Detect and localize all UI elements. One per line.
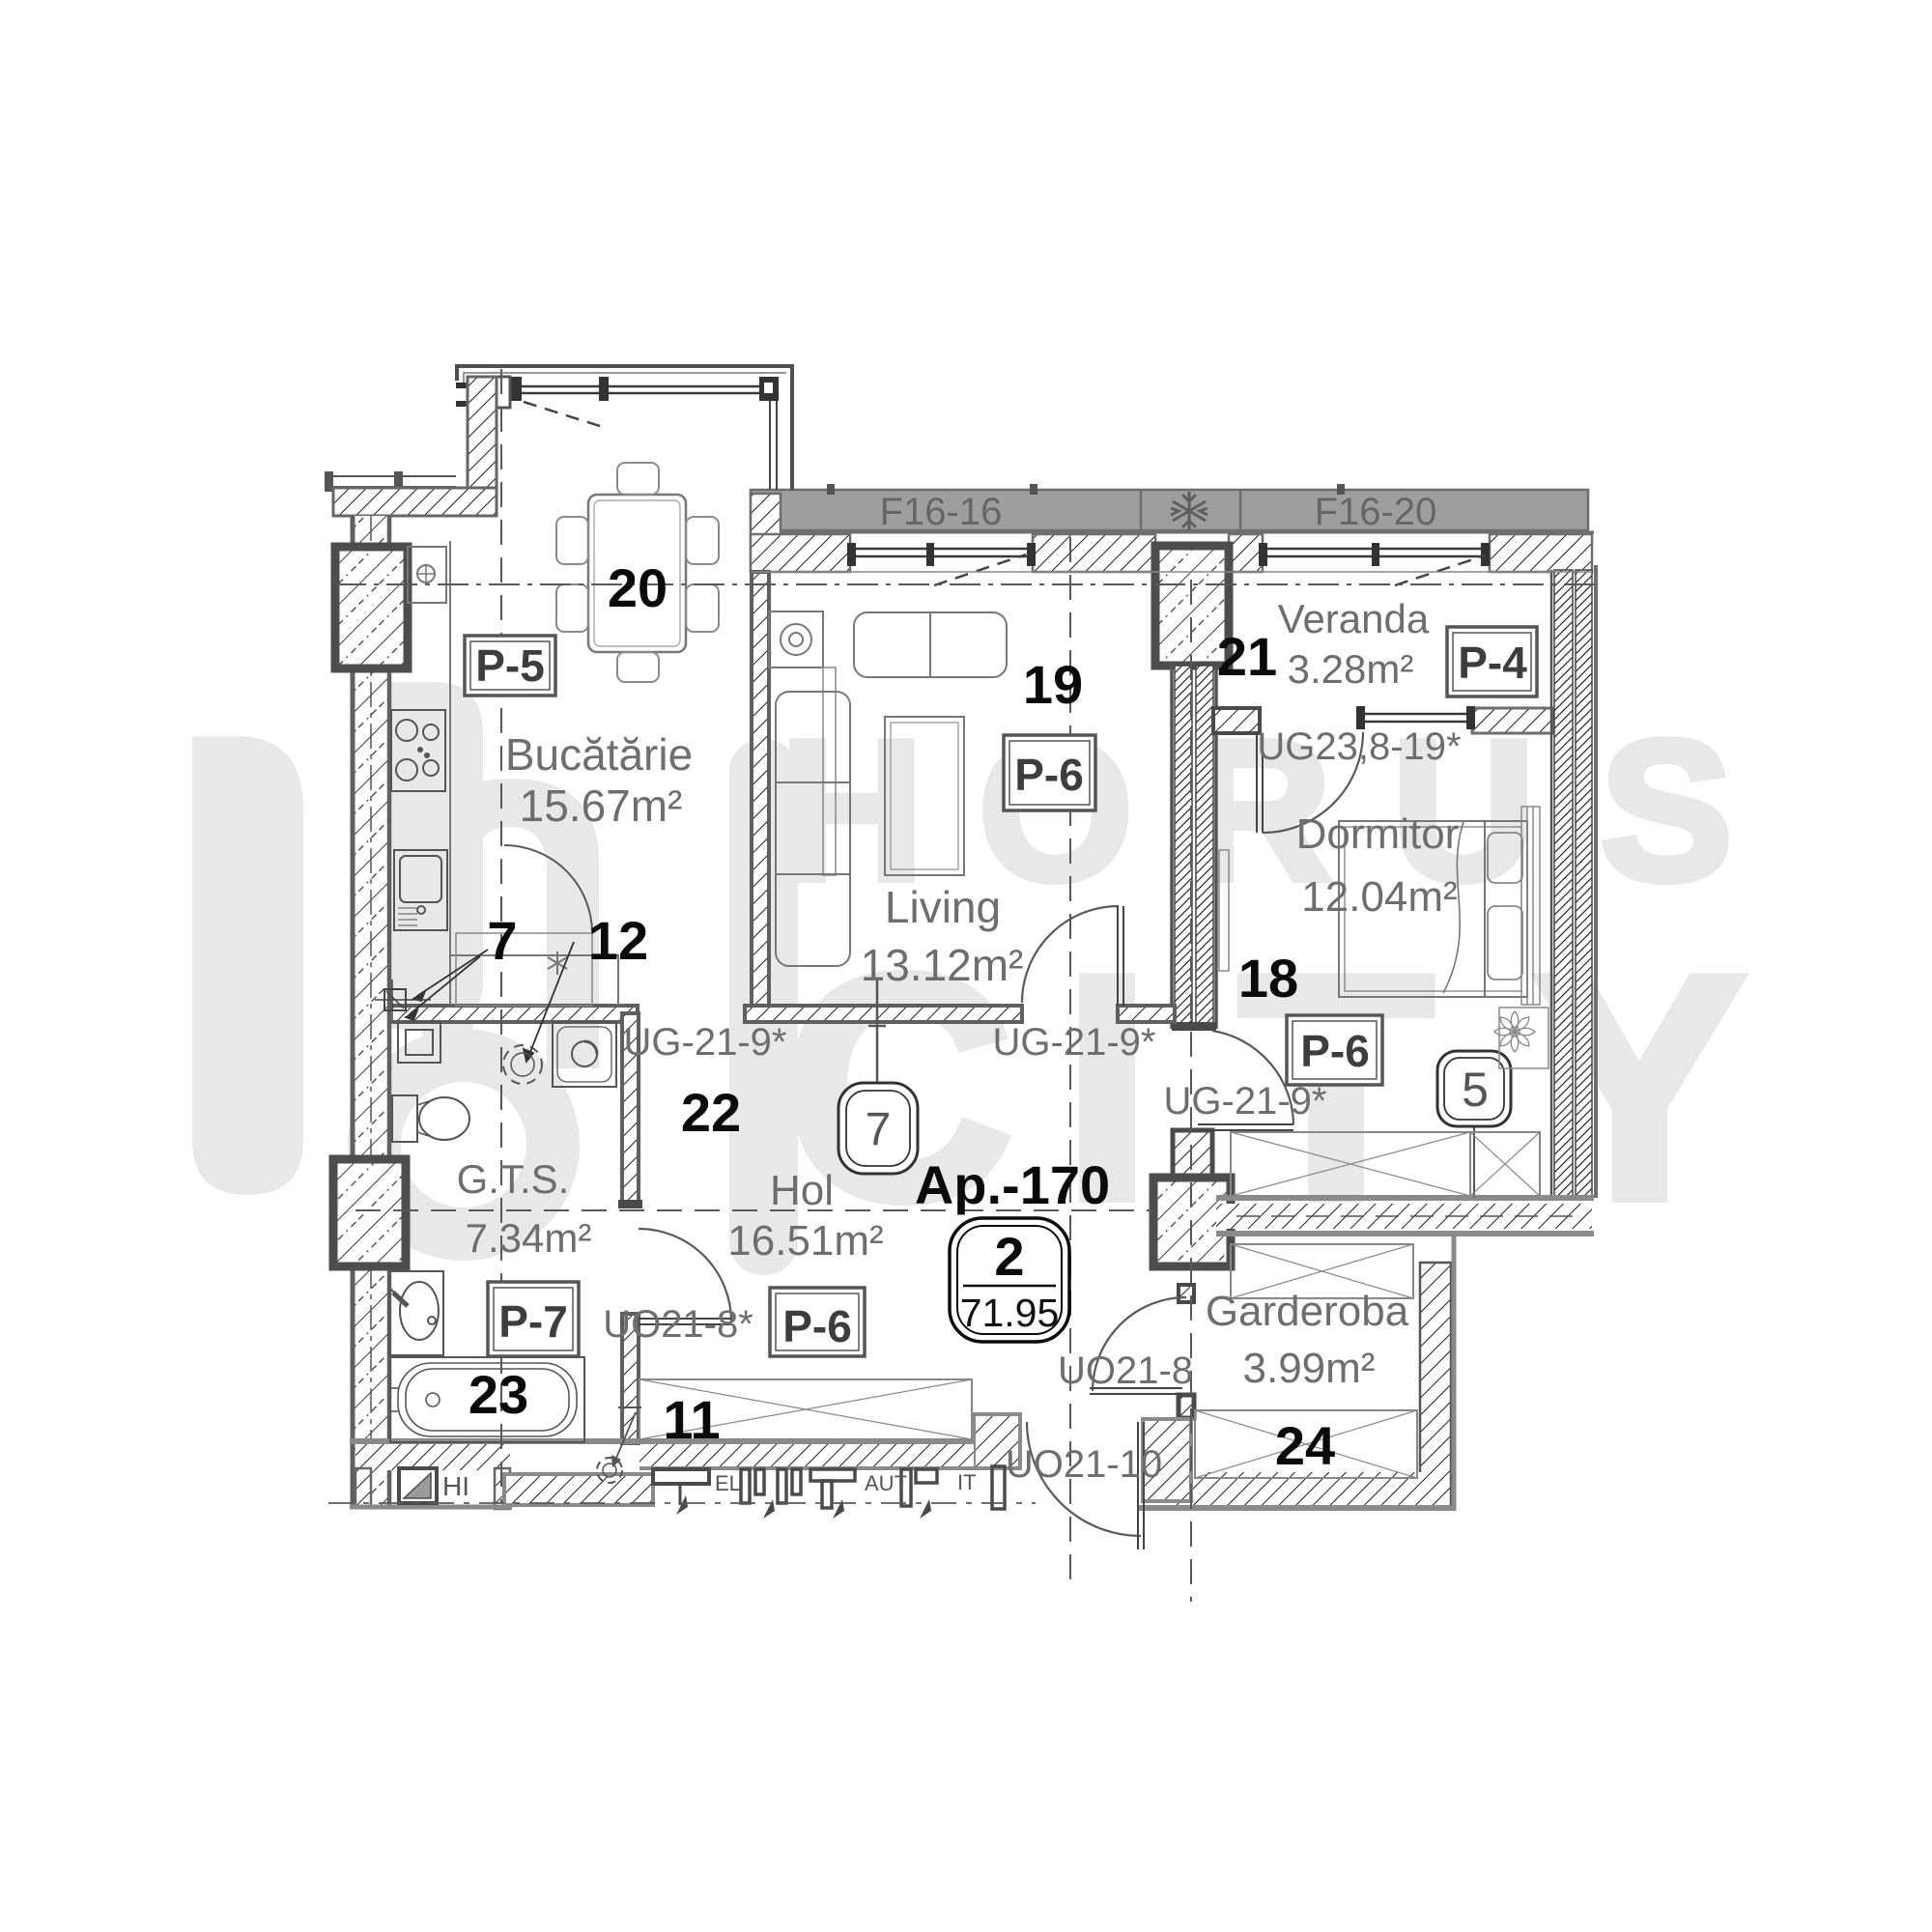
svg-text:23: 23 — [469, 1364, 528, 1425]
svg-text:15.67m²: 15.67m² — [520, 781, 683, 831]
svg-text:3.99m²: 3.99m² — [1243, 1345, 1376, 1392]
svg-text:S: S — [1600, 699, 1732, 922]
svg-text:UG-21-9*: UG-21-9* — [993, 1021, 1156, 1064]
svg-text:22: 22 — [681, 1082, 741, 1143]
svg-text:UO21-8*: UO21-8* — [603, 1303, 753, 1346]
svg-text:7.34m²: 7.34m² — [466, 1215, 592, 1261]
svg-text:HI: HI — [442, 1471, 469, 1501]
svg-text:F16-16: F16-16 — [880, 491, 1003, 533]
svg-text:UG23,8-19*: UG23,8-19* — [1257, 725, 1461, 768]
svg-text:24: 24 — [1275, 1415, 1335, 1476]
svg-text:7: 7 — [487, 910, 517, 971]
svg-text:20: 20 — [608, 557, 668, 618]
svg-text:G.T.S.: G.T.S. — [457, 1156, 570, 1202]
svg-text:Bucătărie: Bucătărie — [505, 729, 693, 780]
svg-text:P-7: P-7 — [498, 1296, 568, 1347]
svg-text:UO21-8: UO21-8 — [1058, 1350, 1193, 1392]
svg-text:Veranda: Veranda — [1278, 596, 1430, 641]
svg-text:UG-21-9*: UG-21-9* — [1164, 1080, 1327, 1122]
svg-text:P-6: P-6 — [782, 1301, 852, 1351]
svg-text:16.51m²: 16.51m² — [727, 1217, 883, 1264]
svg-text:12: 12 — [588, 910, 648, 971]
svg-text:Garderoba: Garderoba — [1206, 1288, 1409, 1335]
svg-text:5: 5 — [1462, 1063, 1489, 1117]
svg-text:13.12m²: 13.12m² — [861, 940, 1024, 990]
svg-text:71.95: 71.95 — [960, 1291, 1060, 1335]
svg-text:Dormitor: Dormitor — [1296, 810, 1460, 858]
svg-text:18: 18 — [1238, 948, 1298, 1009]
svg-text:P-4: P-4 — [1458, 638, 1527, 688]
svg-text:EL: EL — [715, 1471, 741, 1495]
svg-text:AUT: AUT — [865, 1471, 907, 1495]
svg-text:Ap.-170: Ap.-170 — [915, 1154, 1110, 1215]
svg-text:7: 7 — [866, 1104, 892, 1155]
svg-text:12.04m²: 12.04m² — [1301, 873, 1457, 921]
svg-text:P-5: P-5 — [475, 640, 545, 691]
svg-text:F16-20: F16-20 — [1315, 491, 1437, 533]
svg-text:Hol: Hol — [770, 1167, 834, 1214]
svg-text:3.28m²: 3.28m² — [1288, 646, 1414, 692]
svg-text:19: 19 — [1023, 654, 1083, 715]
svg-text:UO21-10: UO21-10 — [1006, 1443, 1162, 1486]
svg-text:P-6: P-6 — [1300, 1026, 1370, 1076]
svg-text:UG-21-9*: UG-21-9* — [624, 1021, 787, 1064]
svg-text:Living: Living — [885, 882, 1001, 932]
svg-text:21: 21 — [1217, 626, 1277, 687]
svg-text:IT: IT — [957, 1470, 977, 1494]
svg-text:2: 2 — [994, 1226, 1024, 1287]
svg-text:11: 11 — [663, 1389, 720, 1450]
svg-text:P-6: P-6 — [1014, 750, 1084, 800]
